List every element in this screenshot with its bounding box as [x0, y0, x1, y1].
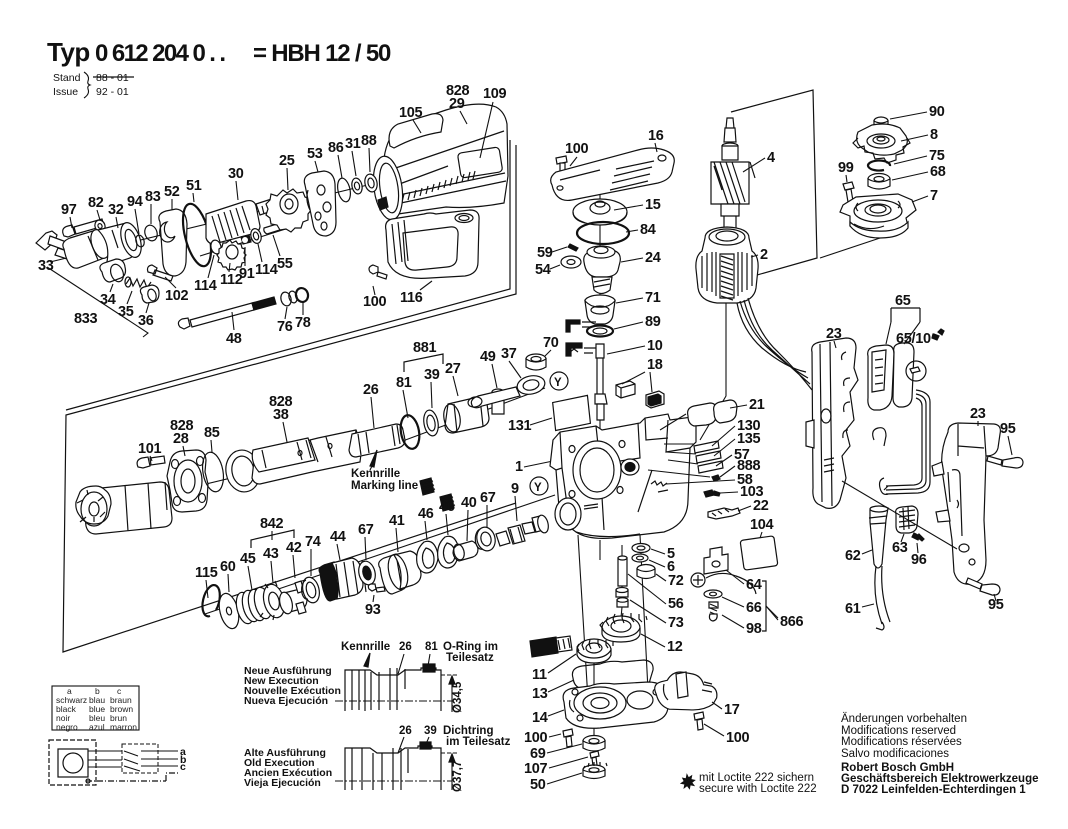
svg-text:50: 50 [530, 777, 546, 793]
svg-text:46: 46 [439, 499, 455, 515]
svg-text:89: 89 [645, 314, 661, 330]
svg-text:82: 82 [88, 195, 104, 211]
svg-text:85: 85 [204, 425, 220, 441]
svg-text:54: 54 [535, 262, 551, 278]
svg-text:im Teilesatz: im Teilesatz [446, 736, 511, 748]
svg-text:36: 36 [138, 313, 154, 329]
svg-text:Teilesatz: Teilesatz [446, 652, 494, 664]
svg-text:881: 881 [413, 340, 437, 356]
svg-text:c: c [180, 761, 186, 773]
svg-text:4: 4 [767, 150, 775, 166]
svg-text:= HBH 12 / 50: = HBH 12 / 50 [253, 40, 391, 67]
svg-text:28: 28 [173, 431, 189, 447]
svg-text:49: 49 [480, 349, 496, 365]
svg-text:65: 65 [895, 293, 911, 309]
svg-text:99: 99 [838, 160, 854, 176]
svg-text:Y: Y [534, 482, 542, 494]
svg-text:8: 8 [930, 127, 938, 143]
svg-text:26: 26 [363, 382, 379, 398]
svg-text:2: 2 [760, 247, 768, 263]
svg-text:34: 34 [100, 292, 116, 308]
svg-text:26: 26 [399, 725, 412, 737]
svg-text:83: 83 [145, 189, 161, 205]
svg-text:negro: negro [56, 722, 78, 732]
svg-text:secure with Loctite 222: secure with Loctite 222 [699, 783, 817, 795]
svg-text:Y: Y [554, 377, 562, 389]
svg-text:22: 22 [753, 498, 769, 514]
svg-text:Marking line: Marking line [351, 480, 418, 492]
svg-text:97: 97 [61, 202, 77, 218]
svg-text:833: 833 [74, 311, 98, 327]
svg-text:43: 43 [263, 546, 279, 562]
svg-text:39: 39 [424, 725, 437, 737]
svg-text:9: 9 [511, 481, 519, 497]
svg-text:67: 67 [480, 490, 496, 506]
svg-text:16: 16 [648, 128, 664, 144]
svg-text:70: 70 [543, 335, 559, 351]
svg-text:842: 842 [260, 516, 284, 532]
svg-text:94: 94 [127, 194, 143, 210]
svg-text:26: 26 [399, 641, 412, 653]
svg-text:Issue: Issue [53, 86, 78, 98]
svg-text:67: 67 [358, 522, 374, 538]
svg-text:12: 12 [667, 639, 683, 655]
svg-text:81: 81 [425, 641, 438, 653]
svg-text:Stand: Stand [53, 72, 81, 84]
svg-text:10: 10 [647, 338, 663, 354]
svg-text:96: 96 [911, 552, 927, 568]
svg-text:7: 7 [930, 188, 938, 204]
svg-text:Modifications réservées: Modifications réservées [841, 736, 962, 748]
svg-text:107: 107 [524, 761, 548, 777]
svg-text:24: 24 [645, 250, 661, 266]
svg-text:71: 71 [645, 290, 661, 306]
svg-text:135: 135 [737, 431, 761, 447]
svg-text:98: 98 [746, 621, 762, 637]
svg-text:100: 100 [363, 294, 387, 310]
svg-text:114: 114 [255, 262, 278, 278]
svg-text:15: 15 [645, 197, 661, 213]
svg-text:33: 33 [38, 258, 54, 274]
svg-text:61: 61 [845, 601, 861, 617]
svg-text:D 7022 Leinfelden-Echterdingen: D 7022 Leinfelden-Echterdingen 1 [841, 784, 1026, 796]
svg-text:31: 31 [345, 136, 361, 152]
svg-text:23: 23 [970, 406, 986, 422]
svg-text:68: 68 [930, 164, 946, 180]
svg-text:37: 37 [501, 346, 517, 362]
svg-text:59: 59 [537, 245, 553, 261]
svg-text:29: 29 [449, 96, 465, 112]
svg-text:100: 100 [524, 730, 548, 746]
svg-text:104: 104 [750, 517, 774, 533]
svg-text:116: 116 [400, 290, 423, 306]
svg-text:27: 27 [445, 361, 461, 377]
svg-text:25: 25 [279, 153, 295, 169]
svg-text:46: 46 [418, 506, 434, 522]
svg-text:Kennrille: Kennrille [351, 468, 400, 480]
svg-text:101: 101 [138, 441, 162, 457]
svg-text:marron: marron [110, 722, 137, 732]
svg-text:109: 109 [483, 86, 507, 102]
svg-text:40: 40 [461, 495, 477, 511]
svg-text:14: 14 [532, 710, 548, 726]
svg-text:48: 48 [226, 331, 242, 347]
svg-text:23: 23 [826, 326, 842, 342]
svg-text:56: 56 [668, 596, 684, 612]
svg-text:84: 84 [640, 222, 656, 238]
svg-text:Ø34,5: Ø34,5 [452, 681, 464, 713]
svg-text:131: 131 [508, 418, 532, 434]
svg-text:114: 114 [194, 278, 217, 294]
svg-text:45: 45 [240, 551, 256, 567]
svg-text:93: 93 [365, 602, 381, 618]
svg-text:Nueva Ejecución: Nueva Ejecución [244, 695, 328, 707]
svg-text:30: 30 [228, 166, 244, 182]
svg-text:60: 60 [220, 559, 236, 575]
svg-text:72: 72 [668, 573, 684, 589]
svg-text:1: 1 [515, 459, 523, 475]
svg-text:88: 88 [361, 133, 377, 149]
svg-text:39: 39 [424, 367, 440, 383]
svg-text:35: 35 [118, 304, 134, 320]
svg-text:63: 63 [892, 540, 908, 556]
svg-text:66: 66 [746, 600, 762, 616]
svg-text:95: 95 [1000, 421, 1016, 437]
svg-text:Ø37,7: Ø37,7 [452, 761, 464, 792]
svg-text:38: 38 [273, 407, 289, 423]
svg-text:44: 44 [330, 529, 346, 545]
svg-text:18: 18 [647, 357, 663, 373]
svg-text:53: 53 [307, 146, 323, 162]
svg-text:Vieja Ejecución: Vieja Ejecución [244, 777, 321, 789]
svg-text:91: 91 [239, 266, 255, 282]
svg-text:Änderungen vorbehalten: Änderungen vorbehalten [841, 713, 967, 725]
svg-text:17: 17 [724, 702, 740, 718]
svg-text:52: 52 [164, 184, 180, 200]
svg-text:102: 102 [165, 288, 189, 304]
svg-text:81: 81 [396, 375, 412, 391]
svg-text:51: 51 [186, 178, 202, 194]
svg-text:0 612 204 0 . .: 0 612 204 0 . . [95, 40, 225, 67]
svg-text:62: 62 [845, 548, 861, 564]
svg-text:21: 21 [749, 397, 765, 413]
svg-text:100: 100 [565, 141, 589, 157]
svg-text:90: 90 [929, 104, 945, 120]
svg-text:64: 64 [746, 577, 762, 593]
svg-text:42: 42 [286, 540, 302, 556]
svg-text:13: 13 [532, 686, 548, 702]
svg-text:55: 55 [277, 256, 293, 272]
svg-text:11: 11 [532, 667, 547, 683]
svg-text:69: 69 [530, 746, 546, 762]
svg-text:105: 105 [399, 105, 423, 121]
svg-text:88 - 01: 88 - 01 [96, 72, 129, 84]
svg-text:92 - 01: 92 - 01 [96, 86, 129, 98]
svg-text:32: 32 [108, 202, 124, 218]
svg-text:866: 866 [780, 614, 804, 630]
svg-text:86: 86 [328, 140, 344, 156]
svg-text:Typ: Typ [47, 37, 90, 67]
svg-text:78: 78 [295, 315, 311, 331]
svg-text:76: 76 [277, 319, 293, 335]
svg-text:Kennrille: Kennrille [341, 641, 390, 653]
svg-text:100: 100 [726, 730, 750, 746]
svg-text:74: 74 [305, 534, 321, 550]
svg-text:75: 75 [929, 148, 945, 164]
svg-text:115: 115 [195, 565, 218, 581]
svg-text:41: 41 [389, 513, 405, 529]
svg-text:azul: azul [89, 722, 105, 732]
svg-text:73: 73 [668, 615, 684, 631]
svg-text:Salvo modificaciones: Salvo modificaciones [841, 748, 949, 760]
